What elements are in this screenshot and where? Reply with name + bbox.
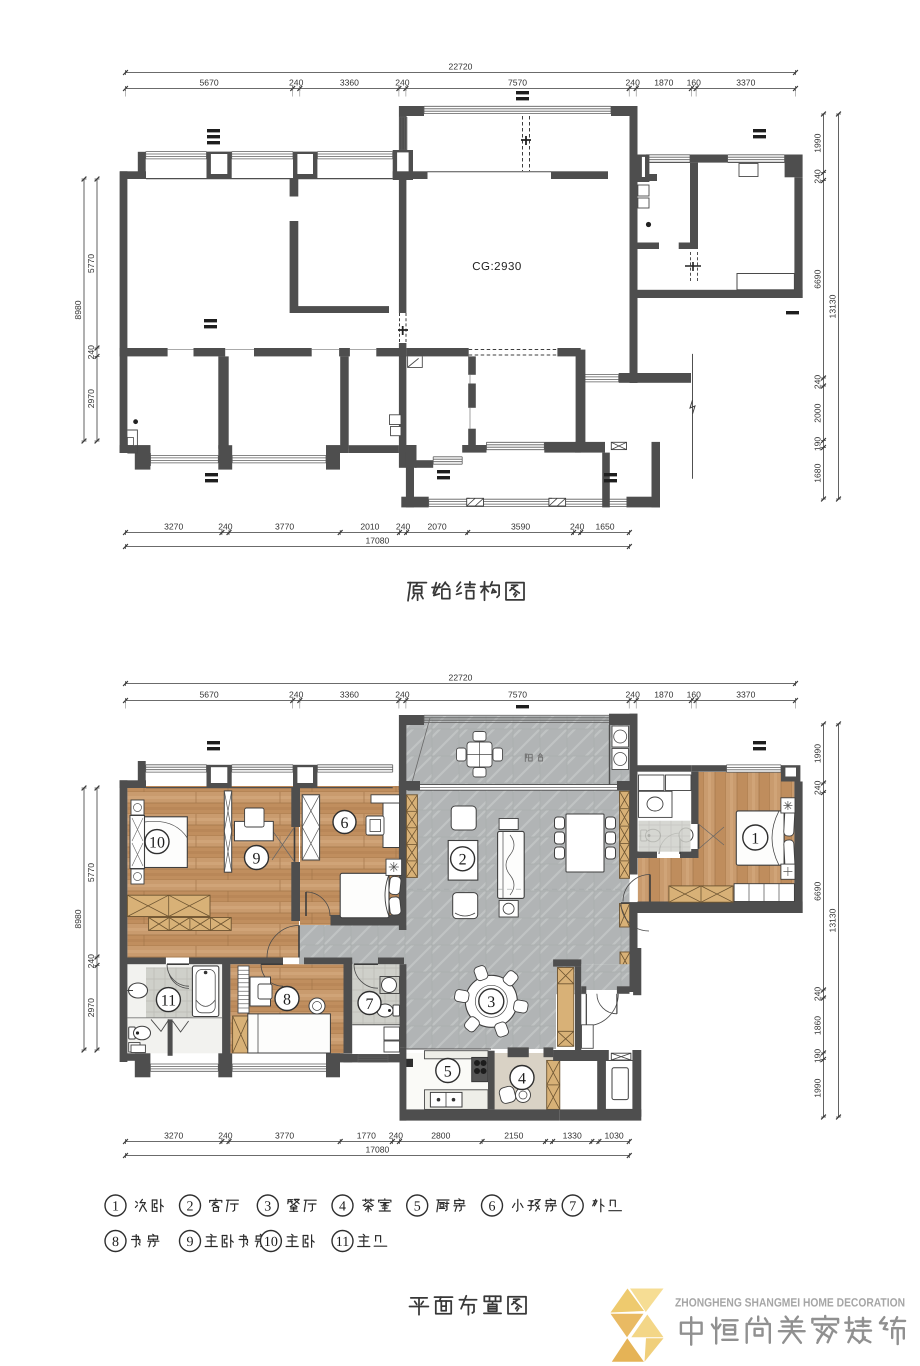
svg-text:190: 190 [813,1049,823,1064]
svg-text:240: 240 [86,954,96,969]
svg-text:7570: 7570 [508,690,527,700]
svg-text:1030: 1030 [605,1131,624,1141]
svg-text:10: 10 [149,834,165,851]
svg-text:3270: 3270 [164,1131,183,1141]
svg-text:160: 160 [687,78,702,88]
svg-text:1990: 1990 [813,1078,823,1097]
svg-text:1870: 1870 [654,78,673,88]
svg-text:240: 240 [626,690,641,700]
svg-text:5770: 5770 [86,863,96,882]
svg-text:1680: 1680 [813,463,823,482]
svg-text:240: 240 [395,690,410,700]
svg-text:6690: 6690 [813,269,823,288]
svg-text:240: 240 [289,78,304,88]
svg-text:2970: 2970 [86,389,96,408]
svg-text:3: 3 [487,994,495,1011]
svg-text:3360: 3360 [340,690,359,700]
svg-text:2000: 2000 [813,403,823,422]
svg-text:1990: 1990 [813,744,823,763]
svg-text:5670: 5670 [200,690,219,700]
svg-text:5670: 5670 [200,78,219,88]
svg-text:1990: 1990 [813,133,823,152]
svg-text:240: 240 [813,375,823,390]
svg-text:3: 3 [264,1200,271,1215]
svg-text:8980: 8980 [73,909,83,928]
svg-text:13130: 13130 [828,294,838,318]
svg-text:2010: 2010 [360,522,379,532]
svg-text:17080: 17080 [365,1145,389,1155]
svg-text:6: 6 [489,1200,496,1215]
svg-text:240: 240 [570,522,585,532]
svg-text:10: 10 [264,1235,278,1250]
svg-text:8: 8 [112,1235,119,1250]
svg-text:240: 240 [813,987,823,1002]
svg-text:240: 240 [396,522,411,532]
svg-text:1860: 1860 [813,1016,823,1035]
svg-text:240: 240 [813,780,823,795]
svg-text:3590: 3590 [511,522,530,532]
svg-text:6: 6 [341,815,349,832]
svg-text:9: 9 [187,1235,194,1250]
svg-text:2: 2 [187,1200,194,1215]
svg-text:3360: 3360 [340,78,359,88]
svg-text:1870: 1870 [654,690,673,700]
svg-text:22720: 22720 [449,673,473,683]
svg-text:9: 9 [253,850,261,867]
svg-text:ZHONGHENG SHANGMEI HOME DECORA: ZHONGHENG SHANGMEI HOME DECORATION [675,1296,905,1310]
svg-text:6690: 6690 [813,882,823,901]
svg-text:1770: 1770 [357,1131,376,1141]
svg-text:2150: 2150 [504,1131,523,1141]
svg-text:11: 11 [161,992,176,1009]
svg-text:4: 4 [518,1070,526,1087]
svg-text:5: 5 [414,1200,421,1215]
svg-text:13130: 13130 [828,908,838,932]
svg-text:1: 1 [112,1200,119,1215]
svg-text:190: 190 [813,437,823,452]
svg-text:7570: 7570 [508,78,527,88]
svg-text:240: 240 [86,345,96,360]
svg-text:11: 11 [336,1235,349,1250]
svg-text:5770: 5770 [86,254,96,273]
svg-text:240: 240 [626,78,641,88]
svg-text:8: 8 [283,991,291,1008]
svg-text:160: 160 [687,690,702,700]
svg-text:240: 240 [389,1131,404,1141]
svg-text:5: 5 [444,1063,452,1080]
svg-text:240: 240 [218,1131,233,1141]
svg-text:3370: 3370 [736,78,755,88]
svg-text:4: 4 [339,1200,346,1215]
svg-text:2070: 2070 [428,522,447,532]
svg-text:240: 240 [218,522,233,532]
svg-text:1650: 1650 [595,522,614,532]
svg-text:17080: 17080 [365,536,389,546]
svg-text:240: 240 [395,78,410,88]
svg-text:2800: 2800 [431,1131,450,1141]
svg-text:240: 240 [289,690,304,700]
svg-text:3770: 3770 [275,1131,294,1141]
svg-text:1: 1 [751,830,759,847]
svg-text:8980: 8980 [73,300,83,319]
svg-text:CG:2930: CG:2930 [472,261,522,273]
svg-text:22720: 22720 [449,62,473,72]
svg-text:7: 7 [569,1200,576,1215]
svg-text:3270: 3270 [164,522,183,532]
svg-text:2970: 2970 [86,998,96,1017]
svg-text:3770: 3770 [275,522,294,532]
svg-text:7: 7 [366,996,374,1013]
svg-text:240: 240 [813,169,823,184]
svg-text:2: 2 [459,852,467,869]
svg-text:1330: 1330 [563,1131,582,1141]
svg-text:3370: 3370 [736,690,755,700]
